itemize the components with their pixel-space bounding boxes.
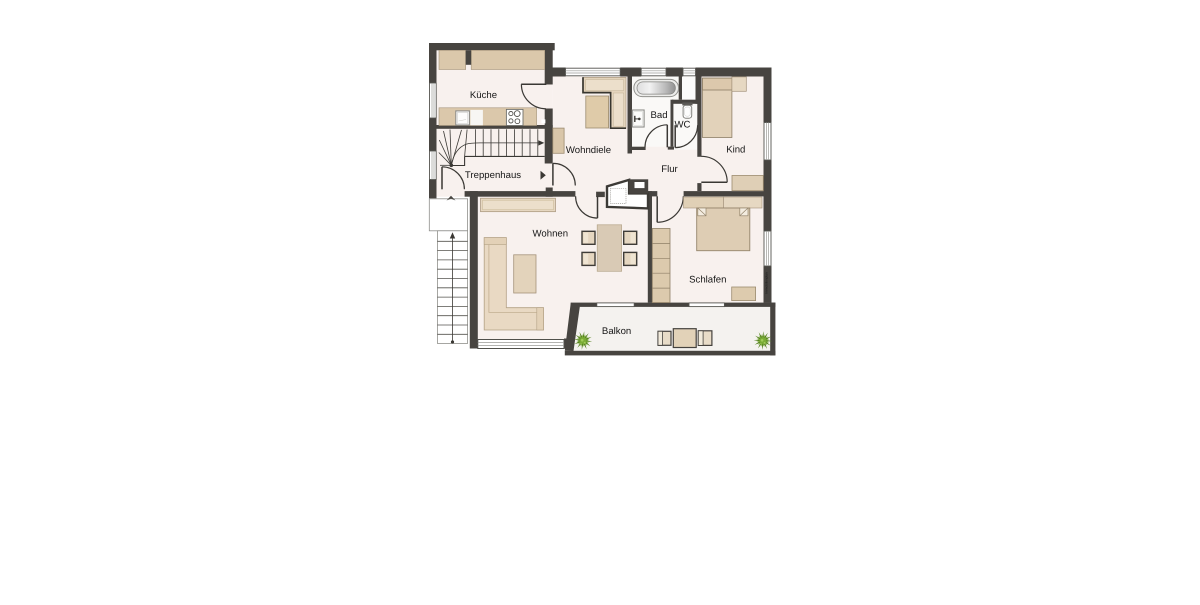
svg-text:Wohnen: Wohnen <box>533 229 569 240</box>
svg-text:Balkon: Balkon <box>602 326 631 337</box>
svg-text:Immobilienplan: Immobilienplan <box>765 272 769 294</box>
svg-text:Flur: Flur <box>661 164 678 175</box>
svg-text:Küche: Küche <box>470 90 497 101</box>
svg-text:Kind: Kind <box>726 145 745 156</box>
svg-text:Wohndiele: Wohndiele <box>566 145 611 156</box>
svg-text:Bad: Bad <box>650 110 667 121</box>
svg-text:WC: WC <box>675 119 691 130</box>
svg-text:Schlafen: Schlafen <box>689 275 726 286</box>
svg-text:Treppenhaus: Treppenhaus <box>465 170 521 181</box>
